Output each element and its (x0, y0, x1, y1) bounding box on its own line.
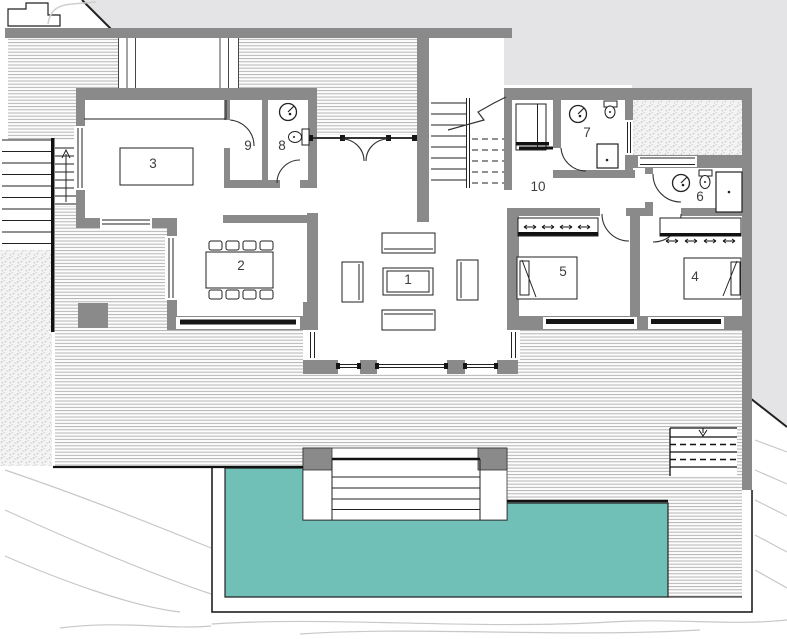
sofa-bottom (382, 310, 435, 330)
chair (226, 241, 239, 250)
chair (243, 290, 256, 299)
chair (226, 290, 239, 299)
room-label-2: 2 (237, 258, 245, 273)
shower-icon-room6 (716, 172, 742, 212)
armchair-right (457, 260, 478, 300)
room-label-10: 10 (530, 179, 545, 194)
staircase-main (429, 38, 506, 190)
floor-plan-page: 1 2 3 4 5 6 7 8 9 10 (0, 0, 787, 639)
room-label-4: 4 (691, 269, 699, 284)
washbasin-icon-room6 (673, 175, 690, 192)
chair (260, 290, 273, 299)
room-label-8: 8 (278, 138, 286, 153)
planter (78, 303, 108, 328)
room-label-6: 6 (696, 189, 704, 204)
chair (243, 241, 256, 250)
room-label-1: 1 (404, 272, 412, 287)
chair (209, 290, 222, 299)
shower-icon-room7 (597, 144, 618, 168)
room-label-3: 3 (149, 156, 157, 171)
retaining-wall (5, 28, 512, 38)
retaining-edge (51, 138, 55, 332)
courtyard-gravel (633, 100, 742, 157)
sofa-top (382, 233, 435, 253)
entry-recess-deck (310, 38, 417, 135)
washbasin-icon-room7 (570, 106, 587, 123)
room-label-9: 9 (244, 138, 252, 153)
room-label-7: 7 (583, 125, 591, 140)
gravel-area-west (0, 250, 52, 466)
pool-pillar-left (303, 448, 332, 470)
armchair-left (342, 262, 363, 302)
pillow (731, 262, 740, 295)
chair (260, 241, 273, 250)
washbasin-icon-room8 (280, 104, 297, 121)
pool-pillar-right (478, 448, 507, 470)
floor-plan-drawing: 1 2 3 4 5 6 7 8 9 10 (0, 0, 787, 639)
room-label-5: 5 (559, 264, 567, 279)
exterior-stair-southeast (670, 428, 737, 476)
pool-steps (303, 448, 507, 520)
chair (209, 241, 222, 250)
